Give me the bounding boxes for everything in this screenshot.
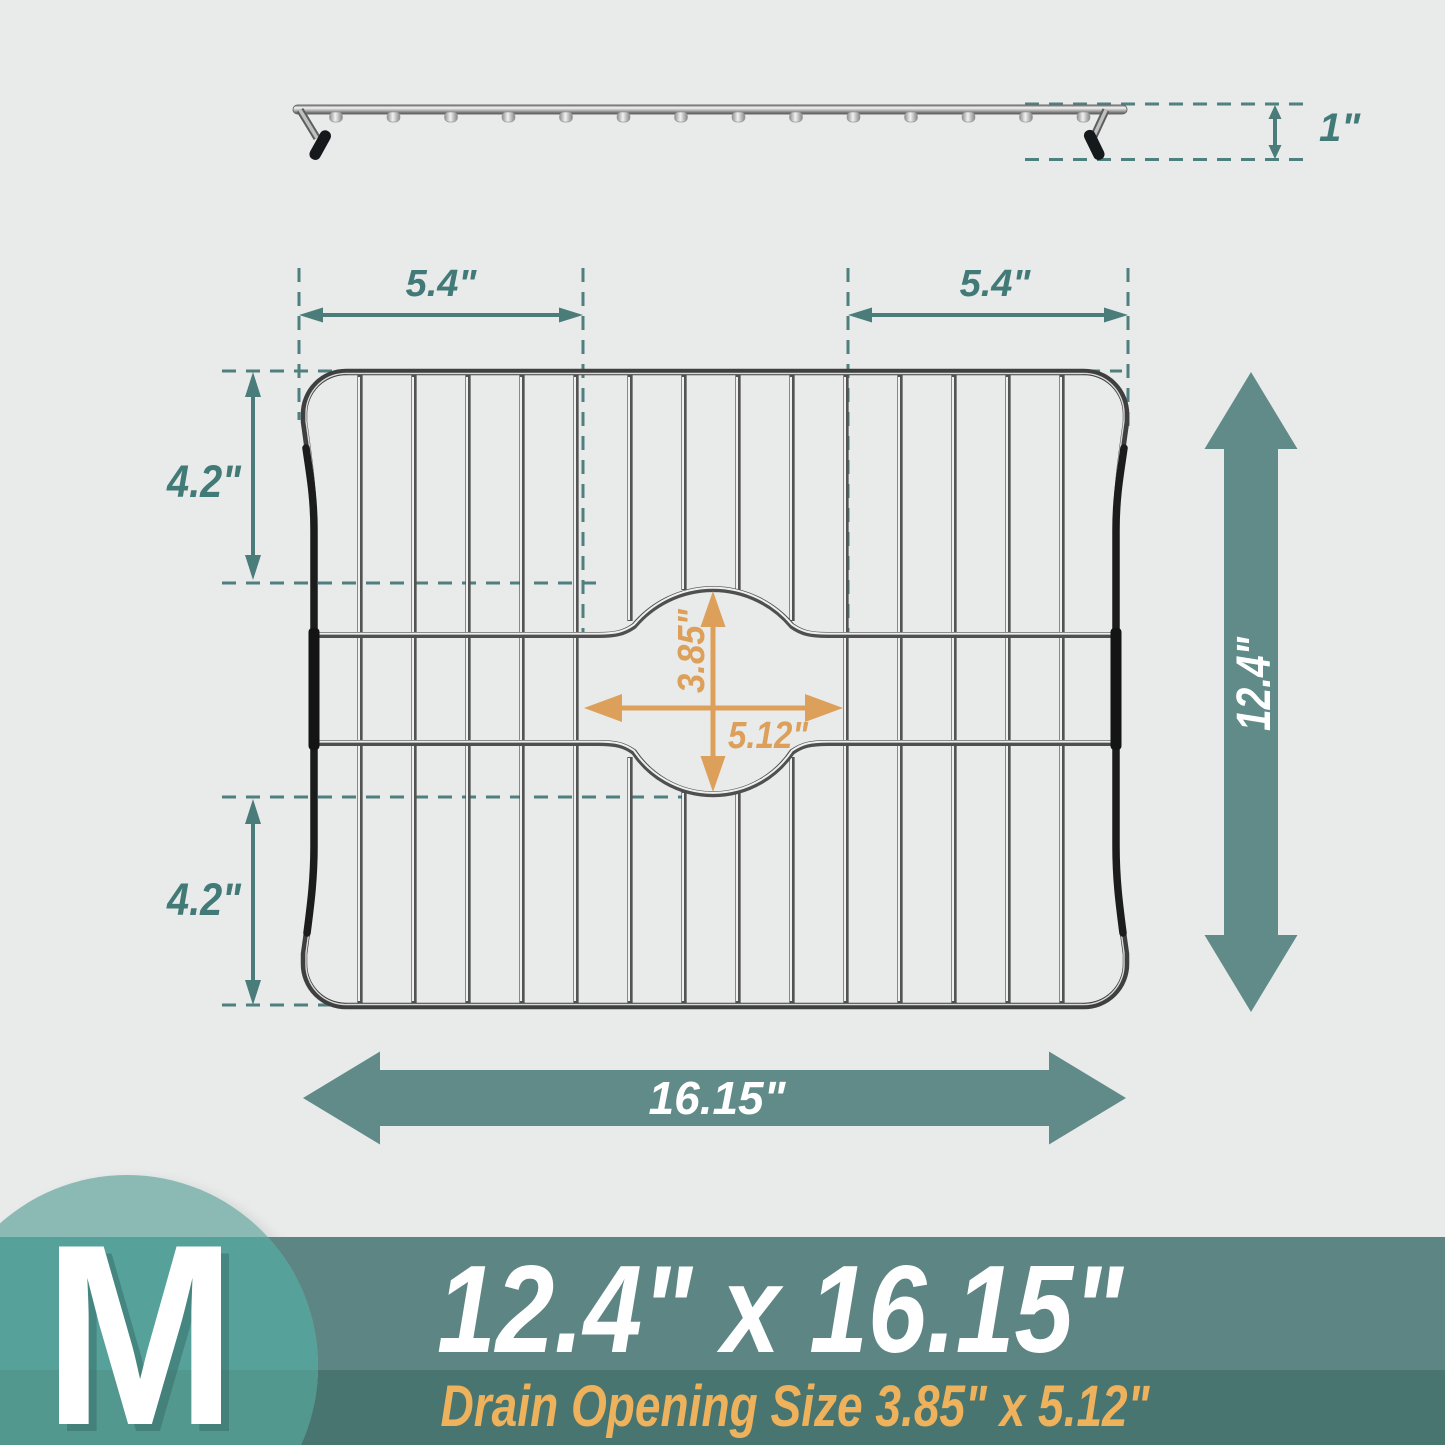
svg-text:4.2": 4.2" bbox=[166, 456, 241, 507]
svg-text:5.4": 5.4" bbox=[406, 263, 478, 305]
svg-text:12.4" x 16.15": 12.4" x 16.15" bbox=[437, 1241, 1125, 1379]
svg-text:16.15": 16.15" bbox=[649, 1072, 787, 1124]
svg-text:5.4": 5.4" bbox=[960, 263, 1032, 305]
svg-text:1": 1" bbox=[1319, 106, 1361, 150]
svg-text:3.85": 3.85" bbox=[671, 608, 713, 693]
svg-text:5.12": 5.12" bbox=[728, 715, 809, 757]
svg-text:M: M bbox=[44, 1190, 237, 1445]
svg-text:Drain Opening Size 3.85" x 5.1: Drain Opening Size 3.85" x 5.12" bbox=[441, 1374, 1151, 1439]
svg-text:4.2": 4.2" bbox=[166, 874, 241, 925]
svg-text:12.4": 12.4" bbox=[1228, 636, 1281, 731]
